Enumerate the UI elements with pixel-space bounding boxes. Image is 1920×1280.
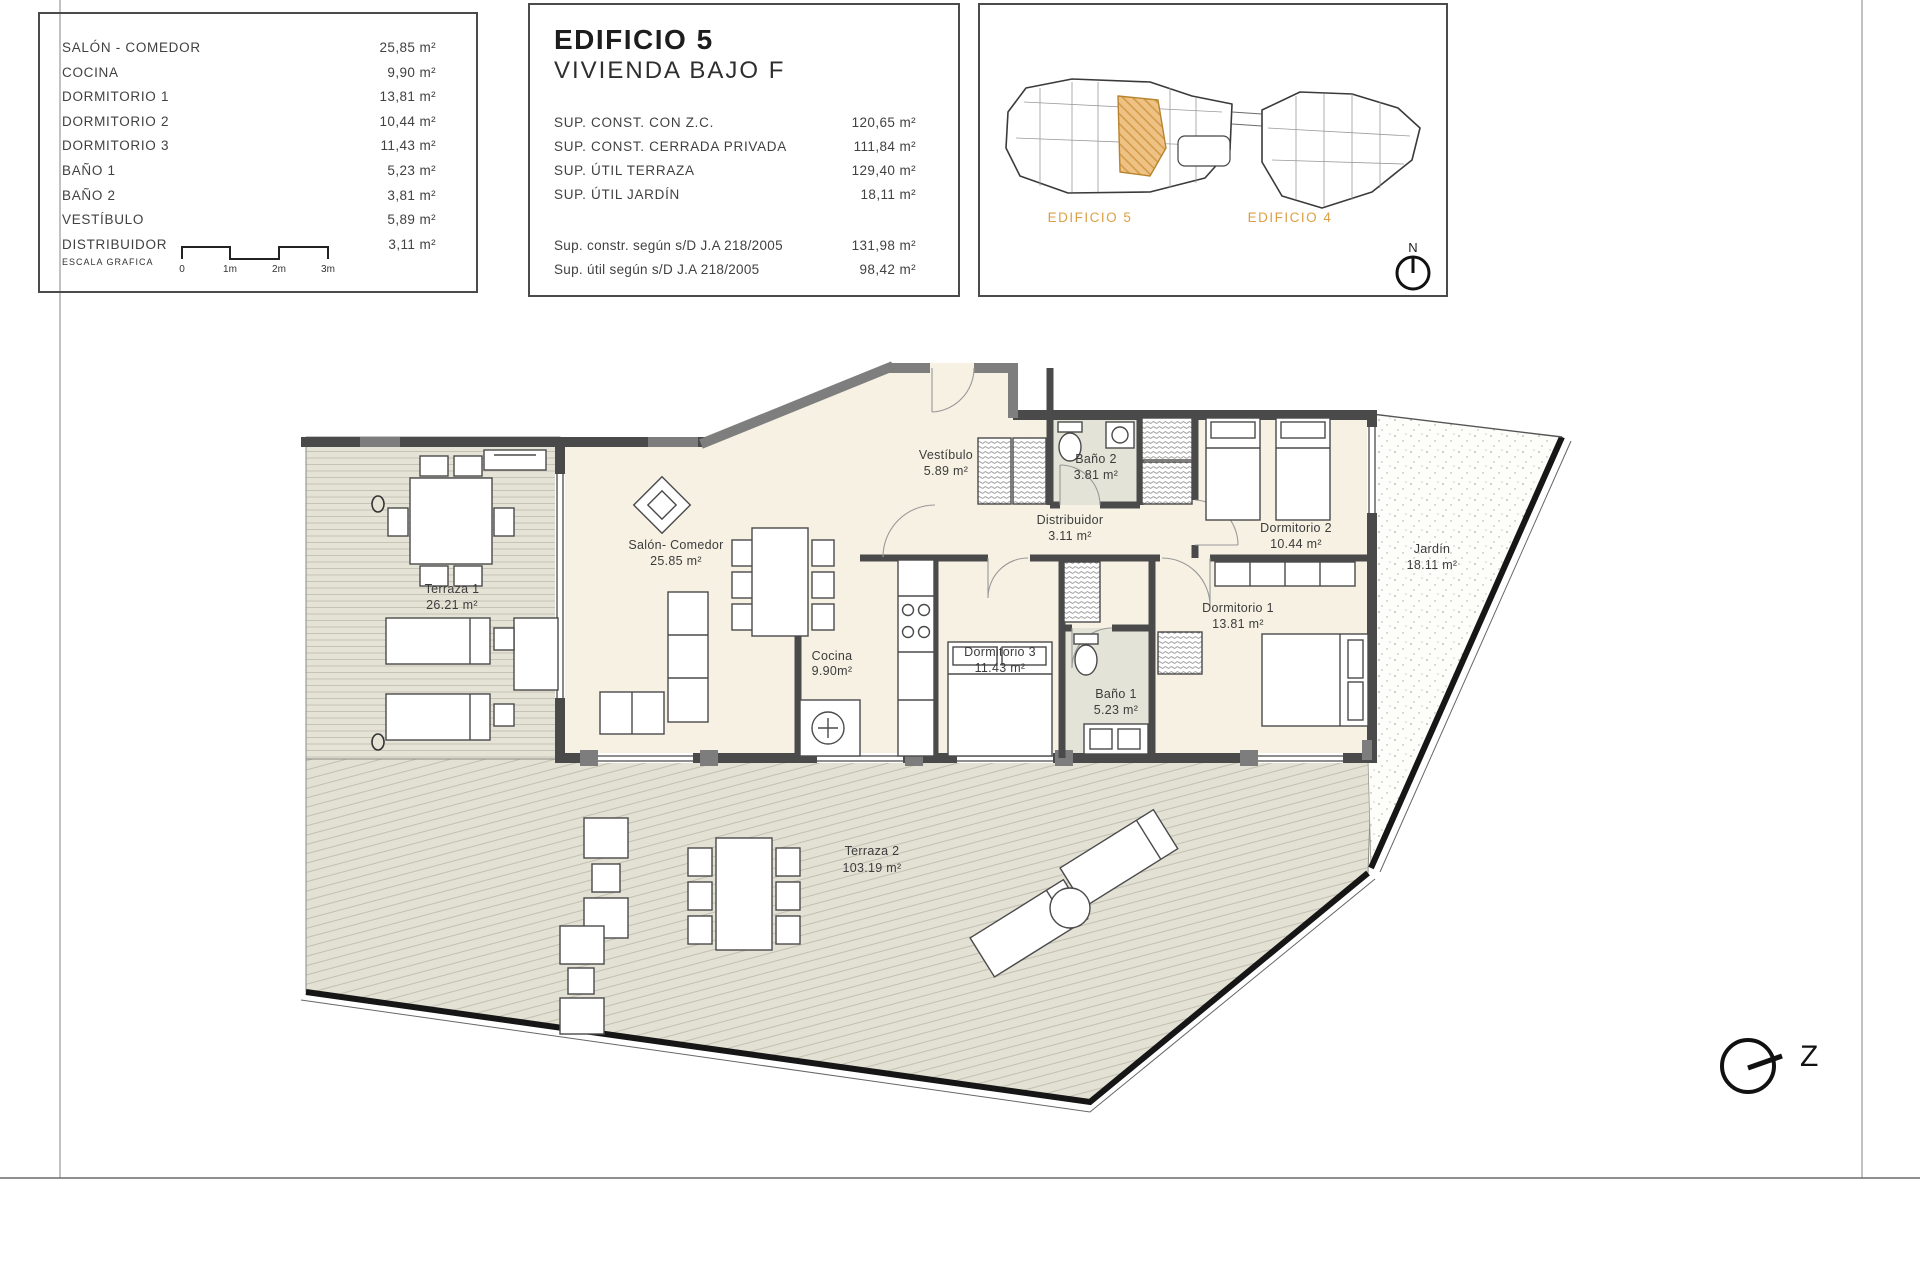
room-label: BAÑO 2 xyxy=(62,188,116,203)
site-key-panel xyxy=(978,3,1448,297)
table-row: BAÑO 15,23 m² xyxy=(62,163,436,188)
room-value: 9,90 m² xyxy=(387,65,436,80)
table-row: DORMITORIO 210,44 m² xyxy=(62,114,436,139)
room-areas-panel: SALÓN - COMEDOR25,85 m² COCINA9,90 m² DO… xyxy=(38,12,478,293)
surface-value: 129,40 m² xyxy=(852,163,916,178)
terraza-2 xyxy=(301,759,1375,1112)
svg-text:0: 0 xyxy=(179,264,185,275)
table-row: Sup. útil según s/D J.A 218/200598,42 m² xyxy=(554,262,916,287)
surface-value: 111,84 m² xyxy=(854,139,916,154)
table-row: SUP. CONST. CON Z.C.120,65 m² xyxy=(554,115,916,139)
room-label: VESTÍBULO xyxy=(62,212,144,227)
svg-text:25.85 m²: 25.85 m² xyxy=(650,554,702,568)
surface-label: SUP. ÚTIL JARDÍN xyxy=(554,187,680,202)
svg-text:2m: 2m xyxy=(272,264,286,275)
surface-label: Sup. útil según s/D J.A 218/2005 xyxy=(554,262,759,277)
surface-label: SUP. CONST. CON Z.C. xyxy=(554,115,714,130)
table-row: SALÓN - COMEDOR25,85 m² xyxy=(62,40,436,65)
svg-text:Dormitorio 2: Dormitorio 2 xyxy=(1260,521,1332,535)
room-value: 3,81 m² xyxy=(387,188,436,203)
room-value: 3,11 m² xyxy=(388,237,436,252)
surface-value: 98,42 m² xyxy=(860,262,916,277)
svg-text:11.43 m²: 11.43 m² xyxy=(975,661,1026,675)
floor-plan-sheet: EDIFICIO 5 EDIFICIO 4 N xyxy=(0,0,1920,1280)
svg-text:3.81 m²: 3.81 m² xyxy=(1074,468,1118,482)
orientation-letter: Z xyxy=(1800,1040,1818,1073)
vanity-bano1 xyxy=(1084,724,1148,754)
kitchen-cabinet xyxy=(800,700,860,756)
svg-text:103.19 m²: 103.19 m² xyxy=(843,861,902,875)
room-value: 5,89 m² xyxy=(387,212,436,227)
bed-dorm3 xyxy=(948,642,1052,756)
room-value: 10,44 m² xyxy=(380,114,436,129)
room-label: DORMITORIO 2 xyxy=(62,114,169,129)
table-row: SUP. ÚTIL JARDÍN18,11 m² xyxy=(554,187,916,211)
bed-dorm1 xyxy=(1262,634,1368,726)
table-row: COCINA9,90 m² xyxy=(62,65,436,90)
svg-text:Jardín: Jardín xyxy=(1414,542,1451,556)
room-value: 25,85 m² xyxy=(380,40,436,55)
table-row: BAÑO 23,81 m² xyxy=(62,188,436,213)
unit-title: EDIFICIO 5 xyxy=(554,25,916,54)
room-value: 11,43 m² xyxy=(381,138,436,153)
table-row: SUP. ÚTIL TERRAZA129,40 m² xyxy=(554,163,916,187)
sofa-small xyxy=(600,692,664,734)
svg-text:1m: 1m xyxy=(223,264,237,275)
surface-value: 131,98 m² xyxy=(852,238,916,253)
table-row: DORMITORIO 113,81 m² xyxy=(62,89,436,114)
svg-text:26.21 m²: 26.21 m² xyxy=(426,598,478,612)
svg-text:Baño 1: Baño 1 xyxy=(1095,687,1136,701)
jardin xyxy=(1368,414,1571,872)
svg-text:Baño 2: Baño 2 xyxy=(1075,452,1116,466)
scale-label: ESCALA GRAFICA xyxy=(62,257,154,267)
svg-text:3m: 3m xyxy=(321,264,335,275)
svg-text:10.44 m²: 10.44 m² xyxy=(1270,537,1322,551)
surface-label: SUP. ÚTIL TERRAZA xyxy=(554,163,695,178)
svg-text:Dormitorio 3: Dormitorio 3 xyxy=(964,645,1036,659)
room-value: 5,23 m² xyxy=(387,163,436,178)
wardrobe-dorm1 xyxy=(1215,562,1355,586)
svg-text:5.89 m²: 5.89 m² xyxy=(924,464,968,478)
table-row: SUP. CONST. CERRADA PRIVADA111,84 m² xyxy=(554,139,916,163)
coffee-table xyxy=(514,618,558,690)
table-row: DORMITORIO 311,43 m² xyxy=(62,138,436,163)
svg-text:9.90m²: 9.90m² xyxy=(812,664,853,678)
dining-table-salon xyxy=(732,528,834,636)
room-label: COCINA xyxy=(62,65,119,80)
room-label: BAÑO 1 xyxy=(62,163,116,178)
svg-text:Terraza 2: Terraza 2 xyxy=(845,844,900,858)
table-row: VESTÍBULO5,89 m² xyxy=(62,212,436,237)
svg-text:18.11 m²: 18.11 m² xyxy=(1407,558,1458,572)
svg-text:Salón- Comedor: Salón- Comedor xyxy=(628,538,723,552)
sideboard xyxy=(484,450,546,470)
sink-bano2 xyxy=(1106,422,1134,448)
svg-text:3.11 m²: 3.11 m² xyxy=(1048,529,1092,543)
unit-subtitle: VIVIENDA BAJO F xyxy=(554,57,916,85)
terrace2-dining-set xyxy=(688,838,800,950)
kitchen-counter xyxy=(898,560,934,756)
svg-text:Distribuidor: Distribuidor xyxy=(1037,513,1104,527)
surface-value: 120,65 m² xyxy=(852,115,916,130)
sofa-large xyxy=(668,592,708,722)
graphic-scale: ESCALA GRAFICA 0 1m 2m 3m xyxy=(62,241,348,275)
toilet-bano1 xyxy=(1074,634,1098,675)
room-value: 13,81 m² xyxy=(380,89,436,104)
svg-text:5.23 m²: 5.23 m² xyxy=(1094,703,1138,717)
room-label: SALÓN - COMEDOR xyxy=(62,40,201,55)
surface-label: Sup. constr. según s/D J.A 218/2005 xyxy=(554,238,783,253)
room-label: DORMITORIO 1 xyxy=(62,89,169,104)
svg-text:Terraza 1: Terraza 1 xyxy=(425,582,480,596)
room-label: DORMITORIO 3 xyxy=(62,138,169,153)
unit-info-panel: EDIFICIO 5 VIVIENDA BAJO F SUP. CONST. C… xyxy=(528,3,960,297)
surface-label: SUP. CONST. CERRADA PRIVADA xyxy=(554,139,787,154)
svg-text:Vestíbulo: Vestíbulo xyxy=(919,448,973,462)
surface-value: 18,11 m² xyxy=(861,187,916,202)
svg-text:Dormitorio 1: Dormitorio 1 xyxy=(1202,601,1274,615)
svg-text:Cocina: Cocina xyxy=(812,649,853,663)
table-row: Sup. constr. según s/D J.A 218/2005131,9… xyxy=(554,238,916,263)
scale-bar-icon: 0 1m 2m 3m xyxy=(178,241,348,275)
label-cocina: Cocina9.90m² xyxy=(812,649,853,678)
orientation-compass-icon: Z xyxy=(1722,1040,1818,1092)
svg-text:13.81 m²: 13.81 m² xyxy=(1212,617,1264,631)
